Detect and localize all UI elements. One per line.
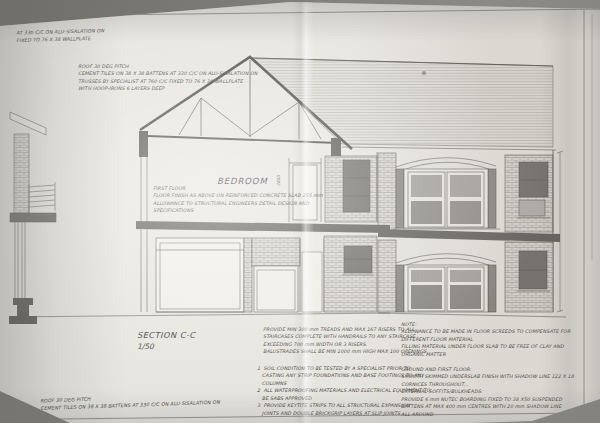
gf-pier bbox=[244, 238, 252, 312]
ff-sidelight-right bbox=[488, 169, 496, 228]
first-floor-slab bbox=[136, 221, 390, 233]
section-scale: 1/50 bbox=[137, 342, 196, 351]
gf-sidelight-left bbox=[396, 265, 404, 312]
materials-note: NOTE: ALLOWANCE TO BE MADE IN FLOOR SCRE… bbox=[401, 320, 574, 418]
ground-line bbox=[10, 312, 566, 317]
ff-panel-right bbox=[519, 200, 545, 216]
wallplate-block-left bbox=[139, 131, 148, 157]
gf-brick-pier bbox=[378, 240, 396, 312]
balustrade bbox=[29, 182, 55, 213]
gf-door bbox=[254, 266, 298, 312]
ground-floor-right bbox=[378, 240, 553, 312]
porch-column-section bbox=[9, 112, 56, 324]
first-floor-note: FIRST FLOOR FLOOR FINISH AS ABOVE ON REI… bbox=[153, 184, 323, 214]
gf-sidelight-right bbox=[488, 265, 496, 312]
photo-backdrop: 2800 AT 330 C/C ON ALU-SISALATION ON FIX… bbox=[0, 0, 600, 423]
section-title: SECTION C-C bbox=[137, 330, 196, 340]
roof-note-top: ROOF 30 DEG PITCH CEMENT TILES ON 38 X 3… bbox=[78, 62, 258, 92]
eaves-note: AT 330 C/C ON ALU-SISALATION ON FIXED TO… bbox=[16, 27, 104, 44]
ff-window bbox=[343, 160, 370, 212]
porch-brick-pier bbox=[14, 134, 29, 214]
photo-smudge bbox=[422, 71, 426, 75]
drawing-sheet: 2800 AT 330 C/C ON ALU-SISALATION ON FIX… bbox=[0, 0, 600, 423]
title-block: SECTION C-C 1/50 bbox=[137, 330, 196, 351]
ground-floor-left bbox=[156, 236, 377, 312]
porch-slab bbox=[10, 213, 56, 222]
ff-brick-pier bbox=[378, 153, 396, 230]
porch-column bbox=[15, 222, 25, 302]
roof-plane bbox=[252, 58, 553, 147]
ff-window-right bbox=[519, 162, 548, 197]
column-footing bbox=[9, 298, 37, 324]
gf-brick-over-door bbox=[252, 238, 300, 266]
gf-passage-door bbox=[302, 252, 322, 312]
dimension-line-right bbox=[557, 151, 563, 312]
garage-door bbox=[156, 238, 244, 312]
ff-sidelight-left bbox=[396, 169, 404, 228]
gf-window bbox=[344, 246, 372, 273]
